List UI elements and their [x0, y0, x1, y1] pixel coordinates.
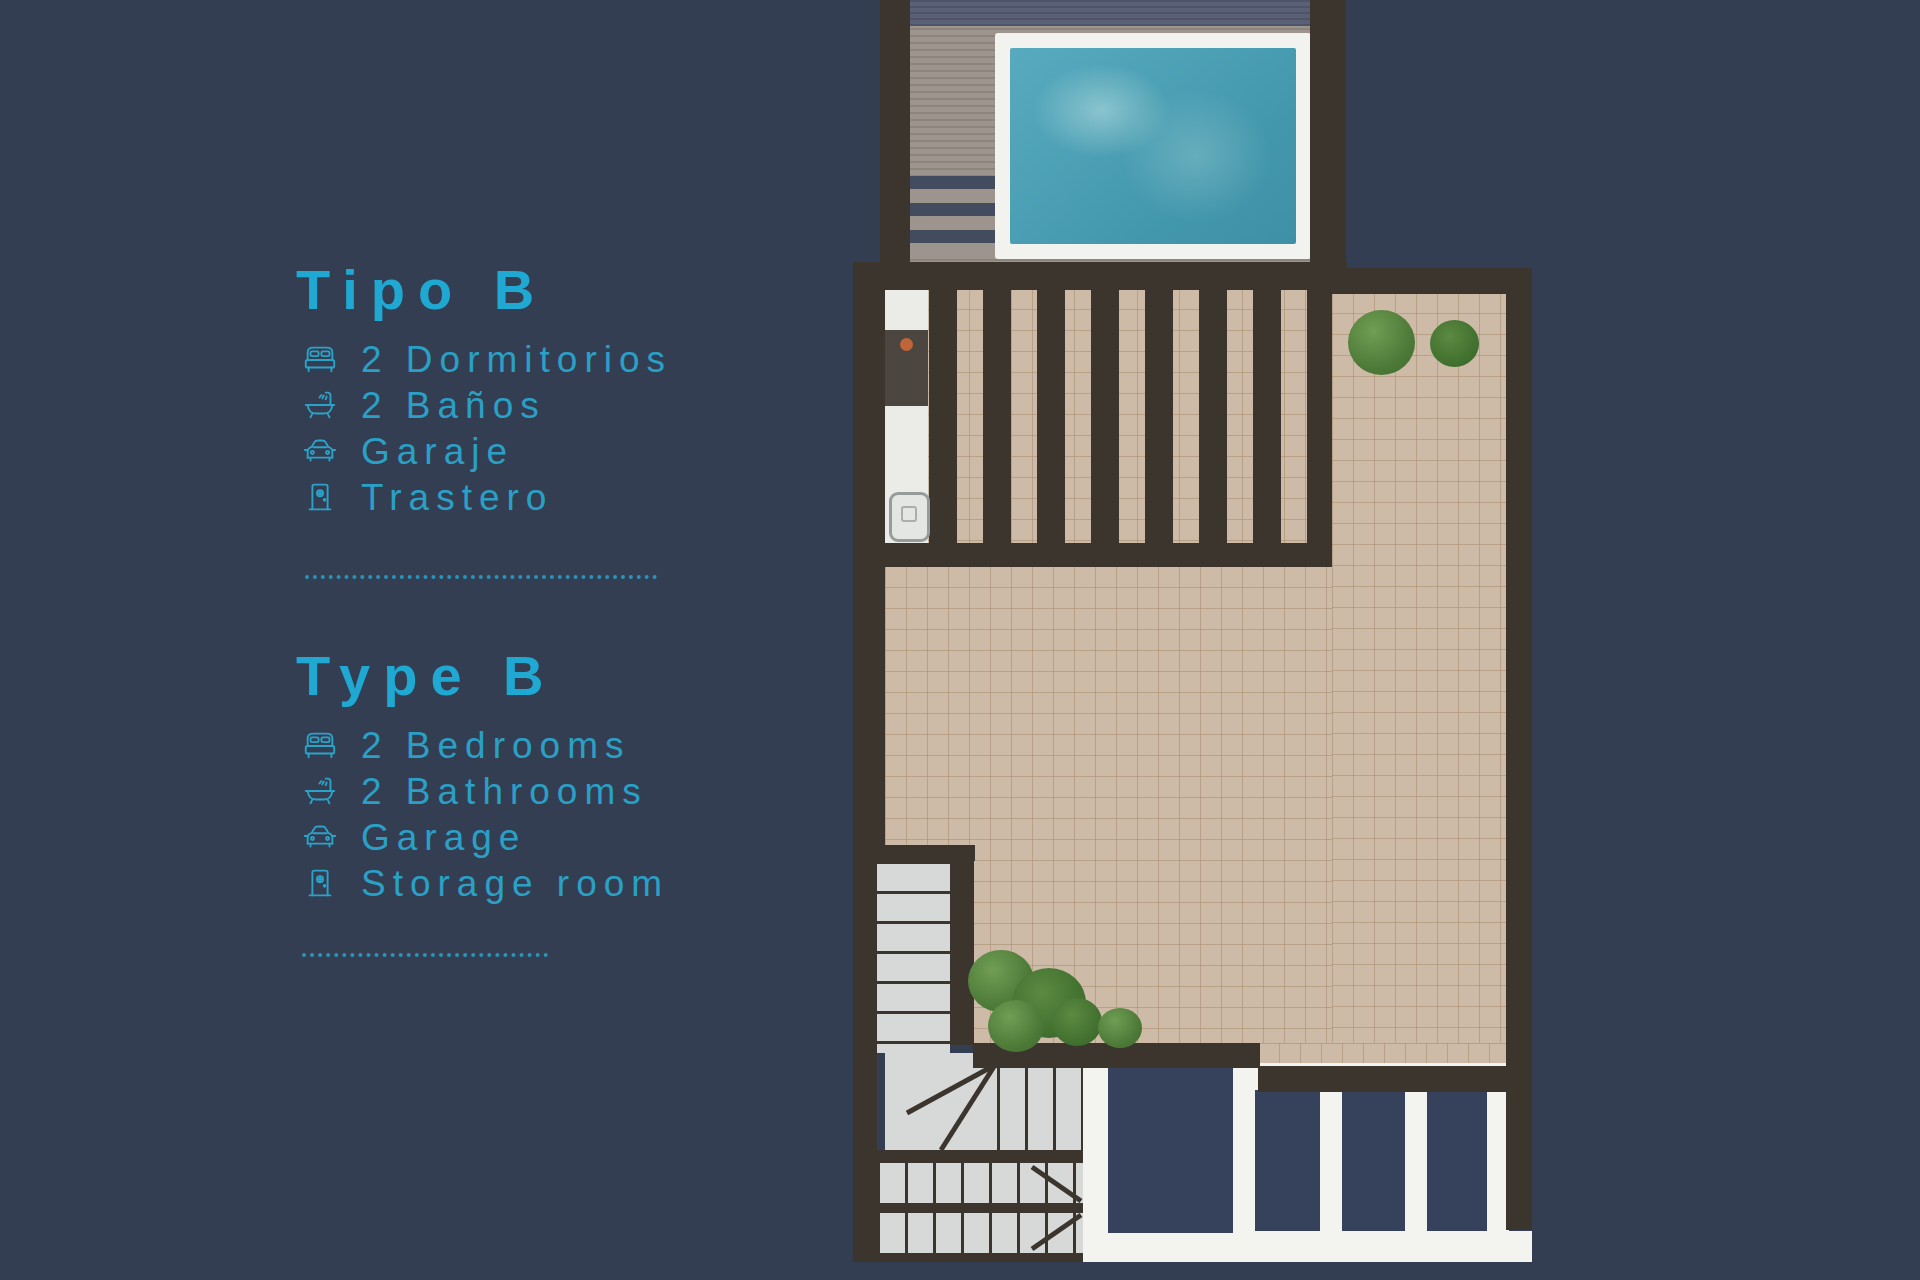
- bathtub-icon: [301, 772, 339, 810]
- list-item-storage-room: Storage room: [301, 860, 669, 906]
- feature-label: Garage: [361, 819, 526, 856]
- wall-pergola-divider: [1310, 288, 1332, 567]
- wall-stair-left: [853, 845, 877, 1262]
- sink-drain: [901, 506, 917, 522]
- bed-icon: [301, 726, 339, 764]
- feature-label: 2 Dormitorios: [361, 341, 672, 378]
- door-icon: [301, 864, 339, 902]
- divider-dotted-line: [305, 575, 657, 579]
- bathtub-icon: [301, 386, 339, 424]
- list-item-garage: Garage: [301, 814, 669, 860]
- stair-flight-return: [997, 1068, 1083, 1150]
- divider-dotted-line-short: [302, 953, 548, 957]
- outdoor-kitchen-counter: [885, 282, 928, 543]
- door-icon: [301, 478, 339, 516]
- plant: [1348, 310, 1415, 375]
- glass-panel: [1342, 1090, 1405, 1231]
- car-icon: [301, 432, 339, 470]
- spanish-title: Tipo B: [296, 262, 547, 318]
- feature-label: Garaje: [361, 433, 514, 470]
- feature-label: 2 Bathrooms: [361, 773, 648, 810]
- swimming-pool: [995, 33, 1311, 259]
- grill-cooktop: [885, 330, 928, 406]
- car-icon: [301, 818, 339, 856]
- stair-bottom-edge: [877, 1253, 1083, 1262]
- deck-edge-band: [908, 0, 1310, 26]
- wall-under-pool: [855, 262, 1347, 290]
- pool-water: [1010, 48, 1296, 244]
- list-item-dormitorios: 2 Dormitorios: [301, 336, 672, 382]
- wall-right: [1506, 268, 1532, 1230]
- list-item-banos: 2 Baños: [301, 382, 672, 428]
- wall-top-left: [880, 0, 910, 264]
- pergola-beams: [929, 288, 1332, 543]
- spanish-feature-list: 2 Dormitorios 2 Baños Garaje Trastero: [301, 336, 672, 520]
- burner-knob: [900, 338, 913, 351]
- floor-plan-brochure-page: Tipo B 2 Dormitorios 2 Baños Garaje Tras…: [0, 0, 1920, 1280]
- feature-label: 2 Bedrooms: [361, 727, 631, 764]
- sink: [889, 492, 930, 542]
- wall-pergola-bottom: [853, 543, 1332, 567]
- feature-label: Storage room: [361, 865, 669, 902]
- plant: [988, 1000, 1044, 1052]
- bed-icon: [301, 340, 339, 378]
- english-feature-list: 2 Bedrooms 2 Bathrooms Garage Storage ro…: [301, 722, 669, 906]
- stair-flight-down: [877, 861, 950, 1053]
- wall-side-terrace-top: [1332, 268, 1525, 294]
- feature-label: Trastero: [361, 479, 553, 516]
- stair-mid-wall: [877, 1150, 1083, 1163]
- list-item-garaje: Garaje: [301, 428, 672, 474]
- plant: [1052, 998, 1102, 1046]
- glass-panel: [1108, 1068, 1233, 1233]
- wall-stair-right: [950, 845, 974, 1045]
- glass-panel: [1427, 1090, 1487, 1231]
- wall-top-right: [1310, 0, 1346, 266]
- list-item-bedrooms: 2 Bedrooms: [301, 722, 669, 768]
- wall-terrace-bottom-right: [1258, 1066, 1510, 1092]
- deck-steps: [908, 176, 1004, 254]
- plant: [1098, 1008, 1142, 1048]
- glass-balustrade: [1083, 1063, 1532, 1262]
- list-item-trastero: Trastero: [301, 474, 672, 520]
- stair-direction-lines: [1030, 1163, 1083, 1253]
- list-item-bathrooms: 2 Bathrooms: [301, 768, 669, 814]
- glass-panel: [1255, 1090, 1320, 1231]
- wall-main-left: [853, 262, 885, 859]
- english-title: Type B: [296, 648, 557, 704]
- plant: [1430, 320, 1479, 367]
- feature-label: 2 Baños: [361, 387, 546, 424]
- side-terrace-tile: [1332, 292, 1508, 1068]
